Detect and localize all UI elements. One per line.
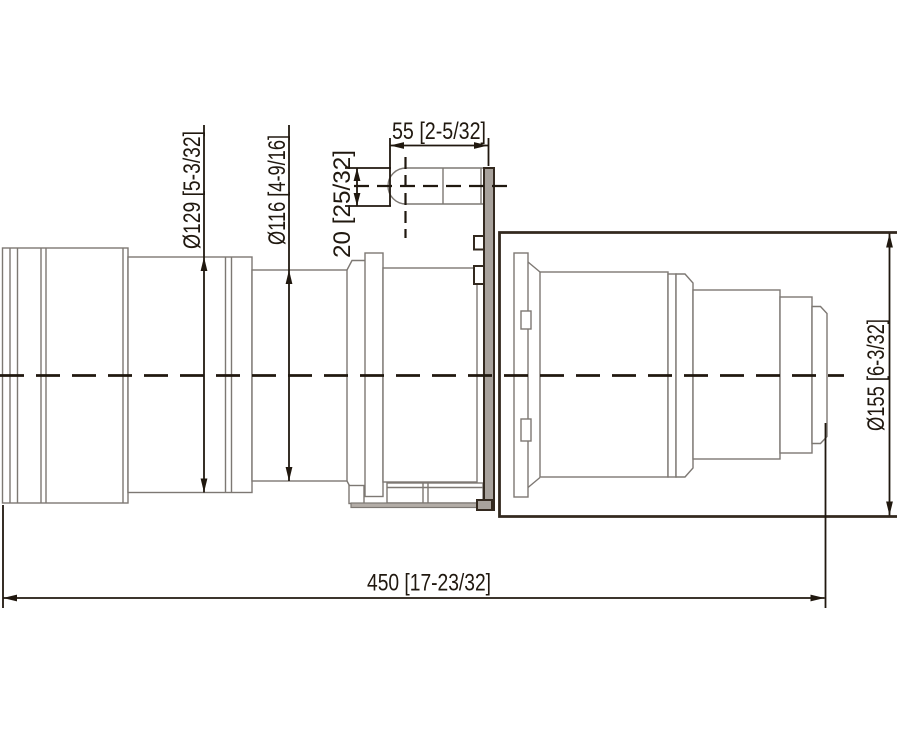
gear-rack <box>387 483 483 503</box>
arrow-right-450 <box>811 595 825 602</box>
bayonet-lug-upper <box>521 311 531 329</box>
barrel-cone <box>528 262 540 488</box>
dim-label-pin-55: 55 [2-5/32] <box>392 118 486 145</box>
mount-screw-upper <box>474 236 484 250</box>
arrow-left-450 <box>3 595 17 602</box>
arrow-up-155 <box>886 234 893 248</box>
mount-screw-lower <box>474 266 484 284</box>
arrow-down-155 <box>886 502 893 516</box>
dim-label-length-450: 450 [17-23/32] <box>367 570 491 597</box>
dim-label-dia-129: Ø129 [5-3/32] <box>179 131 206 249</box>
mounting-plate <box>484 168 494 510</box>
gear-rack-left <box>349 486 364 504</box>
gear-rack-strip <box>351 503 483 508</box>
dim-label-dia-155: Ø155 [6-3/32] <box>863 319 890 431</box>
dim-label-dia-116: Ø116 [4-9/16] <box>264 135 291 245</box>
lens-body <box>3 168 485 508</box>
dim-label-pin-20: 20 [25/32] <box>329 150 356 258</box>
bayonet-lug-lower <box>521 419 531 441</box>
drawing-canvas: Ø129 [5-3/32] Ø116 [4-9/16] 55 [2-5/32] … <box>0 0 900 731</box>
lens-dimension-drawing: Ø129 [5-3/32] Ø116 [4-9/16] 55 [2-5/32] … <box>0 0 900 731</box>
mounting-plate-foot <box>477 500 492 510</box>
